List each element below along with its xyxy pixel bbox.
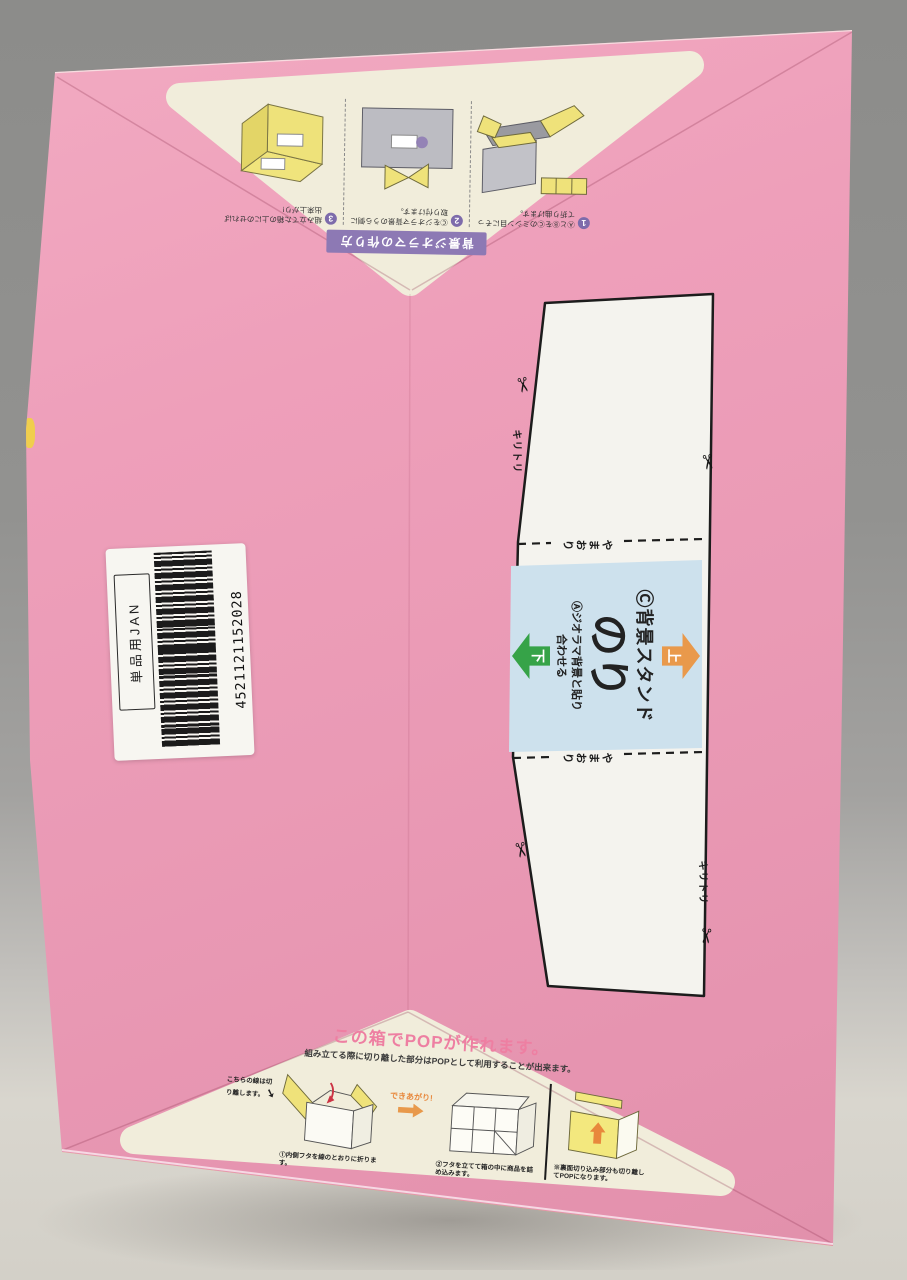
scissors-icon: ✂ [693,923,719,949]
step-number-badge: 3 [325,213,337,225]
pop-step-2: ②フタを立てて箱の中に商品を詰め込みます。 [432,1071,543,1191]
scissors-icon: ✂ [694,448,722,476]
jan-label-box: 単品用JAN [114,573,156,710]
pop-step-3-diagram [554,1078,651,1167]
barcode-sticker: 単品用JAN 4521121152028 [105,543,254,761]
scissors-icon: ✂ [509,371,537,399]
instruction-steps: 1 ⒶとⒷをⒸのミシン目にそって折り曲げます。 [218,97,598,230]
box-side-edge-sliver [24,418,35,448]
step-caption: Ⓒをジオラマ背景のうら側に取り付けます。 [350,205,448,226]
step-caption: 組み立てた箱の上にのせれば出来上がり! [224,203,322,224]
step-number-badge: 1 [578,217,590,229]
product-box: 背景ジオラマの作り方 1 ⒶとⒷをⒸのミシン目にそって折り曲げます。 [0,0,907,1280]
down-arrow-icon: 下 [512,633,550,679]
pop-step-2-diagram [434,1071,543,1165]
pop-caption-3: ※裏面切り込み部分も切り離してPOPになります。 [553,1164,646,1186]
instruction-step-2: 2 Ⓒをジオラマ背景のうら側に取り付けます。 [344,99,472,227]
step-1-diagram [474,101,594,203]
kiritori-label-left: キリトリ [508,425,528,477]
step-3-diagram [222,97,342,199]
step-caption: ⒶとⒷをⒸのミシン目にそって折り曲げます。 [476,208,575,229]
pop-caption-1: ①内側フタを線のとおりに折ります。 [278,1151,379,1174]
step-2-diagram [348,99,468,201]
glue-panel: 上 Ⓒ背景スタンド のり Ⓐジオラマ背景と貼り合わせる 下 [509,562,703,750]
panel-part-c-label: Ⓒ背景スタンド [632,590,658,723]
pop-step-1: ①内側フタを線のとおりに折ります。 [276,1062,387,1182]
instruction-step-3: 3 組み立てた箱の上にのせれば出来上がり! [218,97,346,225]
up-arrow-icon: 上 [662,633,700,679]
step-number-badge: 2 [451,215,463,227]
photo-background: 背景ジオラマの作り方 1 ⒶとⒷをⒸのミシン目にそって折り曲げます。 [0,0,907,1280]
pop-done-block: できあがり! [389,1090,433,1119]
barcode-bars [154,551,220,747]
right-arrow-icon [397,1103,424,1119]
pop-step-1-diagram [278,1062,387,1156]
top-flap-instructions: 背景ジオラマの作り方 1 ⒶとⒷをⒸのミシン目にそって折り曲げます。 [216,53,599,258]
instruction-step-1: 1 ⒶとⒷをⒸのミシン目にそって折り曲げます。 [470,101,598,229]
panel-part-a-note: Ⓐジオラマ背景と貼り合わせる [554,600,584,712]
panel-glue-label: のり [587,614,629,698]
jan-label-text: 単品用JAN [123,601,146,683]
curved-arrow-icon: ➘ [264,1086,277,1102]
pop-step-3: ※裏面切り込み部分も切り離してPOPになります。 [552,1078,651,1193]
section-divider [544,1084,552,1180]
kiritori-label-right: キリトリ [694,856,714,908]
instructions-banner: 背景ジオラマの作り方 [327,230,486,256]
scissors-icon: ✂ [507,836,535,864]
done-label: できあがり! [390,1090,433,1104]
pop-cut-note: こちらの線は切り離します。 ➘ [226,1076,277,1102]
pop-caption-2: ②フタを立てて箱の中に商品を詰め込みます。 [435,1161,536,1184]
